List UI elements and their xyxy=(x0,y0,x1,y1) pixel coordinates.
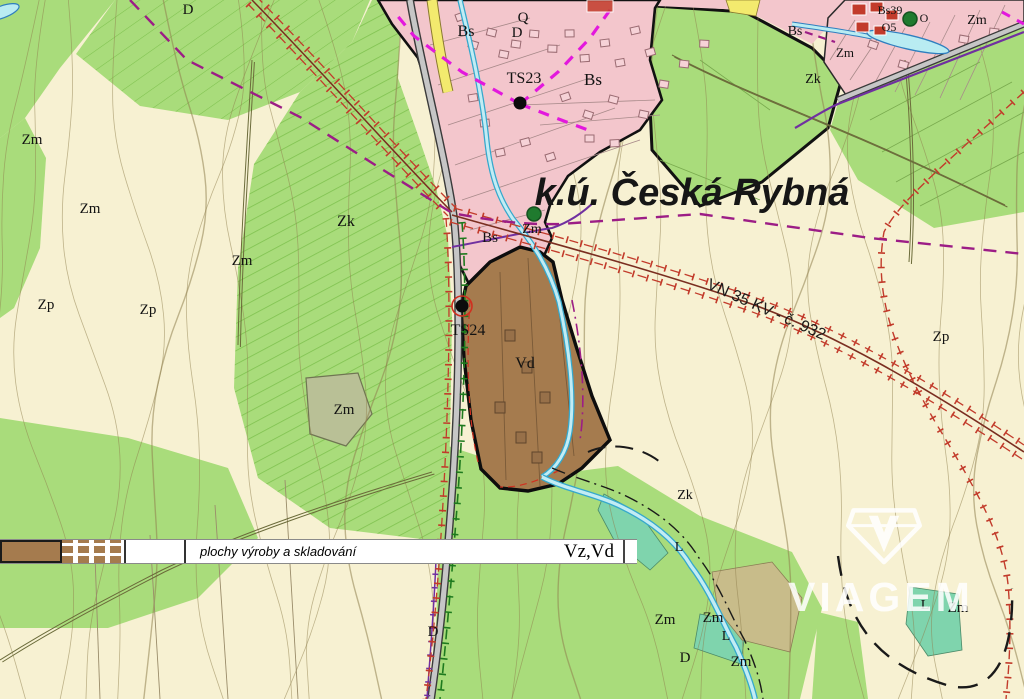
zone-label-zm: Zm xyxy=(731,654,752,670)
zone-label-vd: Vd xyxy=(515,355,535,372)
zone-label-d: D xyxy=(428,624,439,640)
legend-swatch-solid xyxy=(0,540,62,563)
legend-swatch-dashed xyxy=(62,540,124,563)
zone-label-d: D xyxy=(183,2,194,18)
zone-label-bs39: Bs39 xyxy=(878,3,903,17)
zone-label-zk: Zk xyxy=(337,213,355,230)
map-canvas[interactable]: DQDBsTS23BsBs39O5OZmZmBsZkZmZmZmZpZpZkBs… xyxy=(0,0,1024,699)
zone-label-zm: Zm xyxy=(703,610,724,626)
zone-label-zm: Zm xyxy=(967,13,987,28)
legend-bar: plochy výroby a skladování Vz,Vd xyxy=(0,539,637,564)
zone-label-o5: O5 xyxy=(882,20,897,34)
zone-label-zm: Zm xyxy=(836,45,854,60)
viagem-watermark: VIAGEM xyxy=(788,506,1024,618)
region-title: k.ú. Česká Rybná xyxy=(535,169,850,214)
tree-icon xyxy=(903,12,917,26)
zone-label-zp: Zp xyxy=(933,329,950,345)
zone-label-zm: Zm xyxy=(522,222,542,237)
zone-label-bs: Bs xyxy=(584,70,602,89)
zone-label-zm: Zm xyxy=(80,201,101,217)
zone-label-bs: Bs xyxy=(788,24,803,39)
zone-label-zp: Zp xyxy=(140,302,157,318)
zone-label-zm: Zm xyxy=(232,253,253,269)
zone-label-zp: Zp xyxy=(38,297,55,313)
zone-label-zm: Zm xyxy=(22,132,43,148)
ts23-station-icon xyxy=(514,97,527,110)
zone-label-d: D xyxy=(512,25,523,41)
legend-end-cap xyxy=(623,540,637,563)
zone-label-bs: Bs xyxy=(482,230,498,246)
ts24-station-icon xyxy=(456,300,469,313)
zone-label-bs: Bs xyxy=(458,23,475,40)
zone-label-q: Q xyxy=(518,10,529,26)
zone-label-zk: Zk xyxy=(677,488,693,503)
zone-label-zm: Zm xyxy=(655,612,676,628)
legend-description: plochy výroby a skladování xyxy=(186,540,555,563)
zone-label-l: L xyxy=(722,629,731,644)
zone-label-d: D xyxy=(680,650,691,666)
zone-label-ts23: TS23 xyxy=(507,70,542,87)
zone-label-l: L xyxy=(675,540,684,555)
legend-swatch-empty xyxy=(124,540,186,563)
zone-label-o: O xyxy=(920,11,929,25)
zone-label-ts24: TS24 xyxy=(451,322,486,339)
viagem-diamond-icon xyxy=(846,506,922,568)
zone-label-zk: Zk xyxy=(805,72,821,87)
zone-label-zm: Zm xyxy=(334,402,355,418)
legend-code: Vz,Vd xyxy=(555,540,623,563)
viagem-brand-text: VIAGEM xyxy=(788,577,1024,618)
